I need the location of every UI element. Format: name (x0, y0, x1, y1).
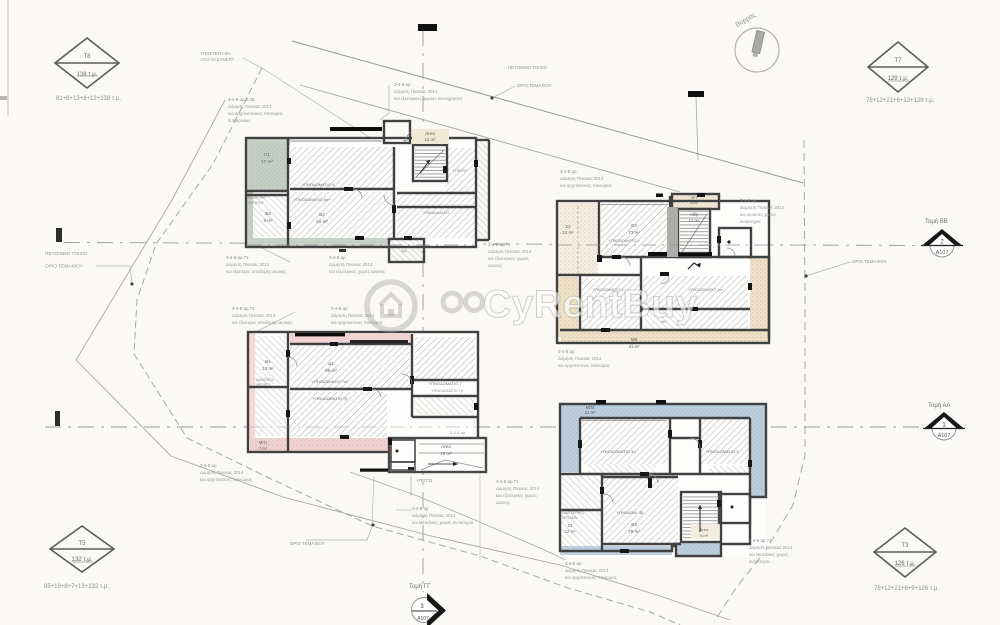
svg-text:Ζ4: Ζ4 (568, 523, 574, 528)
svg-text:ΥΠΝΟΔΩΜΑΤΙΟ 3: ΥΠΝΟΔΩΜΑΤΙΟ 3 (706, 449, 740, 454)
svg-text:15 m²: 15 m² (440, 451, 452, 456)
svg-text:ΟΡΙΟ ΤΕΜΑΧΙΟΥ: ΟΡΙΟ ΤΕΜΑΧΙΟΥ (290, 541, 325, 546)
svg-text:Δόμηση Πινακας 2014: Δόμηση Πινακας 2014 (394, 89, 438, 94)
svg-text:Τομή ΒΒ: Τομή ΒΒ (925, 218, 948, 225)
svg-text:ΥΠΝΟΔΩΜΑΤΙΟ 5α+: ΥΠΝΟΔΩΜΑΤΙΟ 5α+ (293, 197, 331, 202)
svg-text:& Μαρινικες: & Μαρινικες (228, 118, 251, 123)
svg-text:και αρχιτεκτονες Χανιώρας: και αρχιτεκτονες Χανιώρας (560, 183, 612, 188)
svg-text:ΚΑΘΙΣΤΙΚΟ: ΚΑΘΙΣΤΙΚΟ (248, 196, 266, 200)
svg-text:Β2: Β2 (319, 212, 325, 217)
svg-text:και εξωτερες υποδομης Διοικης: και εξωτερες υποδομης Διοικης (232, 320, 293, 325)
svg-text:Δ1: Δ1 (328, 361, 334, 366)
svg-text:3-4-8 αρ: 3-4-8 αρ (331, 306, 348, 311)
svg-text:Β4: Β4 (631, 522, 637, 527)
svg-text:ΥΠΟΣΤΕΓΗ ΘΑ: ΥΠΟΣΤΕΓΗ ΘΑ (200, 51, 231, 56)
svg-text:Δόμηση Πινακας 2014: Δόμηση Πινακας 2014 (329, 262, 373, 267)
svg-text:Διοικης: Διοικης (496, 500, 510, 505)
svg-text:ΥΠΝΟΔΩΜΑΤΙΟ 7α+: ΥΠΝΟΔΩΜΑΤΙΟ 7α+ (311, 379, 349, 384)
svg-text:ΑΠΟ ΤΑ ΣΥΝΕΡΑ: ΑΠΟ ΤΑ ΣΥΝΕΡΑ (200, 57, 234, 62)
svg-text:138 τ.μ.: 138 τ.μ. (77, 72, 98, 78)
svg-text:ΦΑΓΗΤΟΥ: ΦΑΓΗΤΟΥ (248, 201, 265, 205)
svg-text:ΥΠΝΟΔΩΜΑΤΙΟ 3α: ΥΠΝΟΔΩΜΑΤΙΟ 3α (600, 449, 636, 454)
svg-text:41 m²: 41 m² (629, 344, 640, 349)
svg-text:78+12+21+6+12+129 τ.μ.: 78+12+21+6+12+129 τ.μ. (866, 98, 935, 104)
svg-text:3-4-8 αρ: 3-4-8 αρ (329, 255, 346, 260)
svg-text:και αρχιτεκτονες Χανιώρας: και αρχιτεκτονες Χανιώρας (558, 363, 610, 368)
svg-text:ΜΠ: ΜΠ (691, 196, 697, 200)
svg-text:ΥΠΝΟΔΩΜΑΤΙΟ 7β: ΥΠΝΟΔΩΜΑΤΙΟ 7β (431, 389, 463, 393)
svg-text:ΦΑΓΗΤΟΥ: ΦΑΓΗΤΟΥ (256, 383, 272, 387)
svg-text:Β1: Β1 (265, 359, 271, 364)
svg-text:3-4-8 αρ: 3-4-8 αρ (565, 561, 582, 566)
svg-text:3-4-8 αρ.71: 3-4-8 αρ.71 (226, 255, 249, 260)
svg-text:ΥΠΝΟΔΩΜΑΤΙΟ 4: ΥΠΝΟΔΩΜΑΤΙΟ 4 (608, 239, 639, 243)
svg-text:Ε3: Ε3 (631, 223, 637, 228)
svg-text:3-4-8 αρ.b.48: 3-4-8 αρ.b.48 (228, 97, 255, 102)
svg-text:3-4-8 αρ: 3-4-8 αρ (450, 430, 466, 435)
svg-text:12 m²: 12 m² (689, 218, 700, 223)
svg-text:7 m²: 7 m² (259, 446, 268, 451)
svg-text:ΩΔ: ΩΔ (401, 249, 407, 253)
svg-text:Δόμηση Πινακας 2014: Δόμηση Πινακας 2014 (496, 486, 540, 491)
svg-text:ΛΑΝΤΖΙΕΡΙΚΟ/: ΛΑΝΤΖΙΕΡΙΚΟ/ (562, 511, 584, 515)
svg-text:ΟΡΙΟ ΤΕΜΑΧΙΟΥ: ΟΡΙΟ ΤΕΜΑΧΙΟΥ (852, 259, 887, 264)
svg-text:και Μεταλικες χωρες: και Μεταλικες χωρες (749, 552, 789, 557)
svg-text:79 m²: 79 m² (628, 529, 640, 534)
svg-text:ΚΑΘΙΣΤΙΚΟ/: ΚΑΘΙΣΤΙΚΟ/ (256, 378, 274, 382)
svg-text:21 m²: 21 m² (585, 410, 596, 415)
svg-text:+ΓΕΓΓΩ: +ΓΕΓΓΩ (416, 478, 433, 483)
svg-text:Δόμηση Πινακας 2014: Δόμηση Πινακας 2014 (560, 176, 604, 181)
svg-text:Δόμηση Πινακας 2014: Δόμηση Πινακας 2014 (488, 249, 532, 254)
svg-text:Τομή ΓΓ: Τομή ΓΓ (409, 583, 431, 590)
svg-text:και εξωτερικες χωρων κοινοχρησ: και εξωτερικες χωρων κοινοχρηστα (394, 96, 462, 101)
svg-text:73 m²: 73 m² (628, 230, 640, 235)
svg-text:και αρχιτεκτονες Χανιώρας: και αρχιτεκτονες Χανιώρας (200, 477, 252, 482)
svg-text:Τομή ΑΑ: Τομή ΑΑ (928, 402, 950, 409)
svg-text:12 m²: 12 m² (563, 230, 574, 235)
svg-text:και αρχιτεκτονικες Χανιώρας: και αρχιτεκτονικες Χανιώρας (228, 111, 283, 116)
svg-text:81+8+13+8+12+138 τ.μ.: 81+8+13+8+12+138 τ.μ. (56, 96, 121, 102)
svg-text:και αρχιτεκτονες Χανιώρας: και αρχιτεκτονες Χανιώρας (565, 575, 617, 580)
svg-text:και εξωτερες υποδομης Διοικης: και εξωτερες υποδομης Διοικης (226, 269, 287, 274)
svg-text:Δόμηση Πινακας 2014: Δόμηση Πινακας 2014 (232, 313, 276, 318)
svg-text:ΥΠΝΟΔΩΜ. 3β: ΥΠΝΟΔΩΜ. 3β (616, 510, 644, 515)
svg-text:85+19+8+7+13+132 τ.μ.: 85+19+8+7+13+132 τ.μ. (44, 584, 109, 590)
svg-text:Αίθρ: Αίθρ (690, 212, 699, 217)
svg-text:Δόμηση Πινακας 2014: Δόμηση Πινακας 2014 (412, 513, 456, 518)
svg-text:8 m²: 8 m² (690, 201, 698, 205)
svg-text:Area: Area (700, 527, 709, 532)
svg-text:9 m²: 9 m² (700, 533, 709, 538)
svg-text:3-4-8 αρ: 3-4-8 αρ (394, 82, 411, 87)
svg-text:Τ3: Τ3 (901, 543, 909, 549)
svg-text:CyRentBuy: CyRentBuy (483, 283, 698, 326)
svg-text:ΥΠΝΟΔΩΜΑΤΙΟ 6: ΥΠΝΟΔΩΜΑΤΙΟ 6 (302, 182, 336, 187)
svg-text:Δόμηση Πινακας 2014: Δόμηση Πινακας 2014 (226, 262, 270, 267)
svg-text:Α107: Α107 (936, 250, 949, 256)
svg-text:ΥΠΝΟΔΩΜΑΤΙΟ 7β: ΥΠΝΟΔΩΜΑΤΙΟ 7β (312, 396, 348, 401)
svg-text:81 m²: 81 m² (316, 219, 328, 224)
svg-text:Β3: Β3 (265, 211, 271, 216)
svg-text:και ανοικτες χωρες: και ανοικτες χωρες (740, 212, 776, 217)
svg-text:Μ3: Μ3 (631, 337, 637, 342)
svg-text:και εξωτερικες χωρες: και εξωτερικες χωρες (488, 256, 529, 261)
svg-text:3-4-8 αρ: 3-4-8 αρ (412, 506, 429, 511)
svg-text:Π1: Π1 (264, 152, 270, 157)
svg-text:ΟΡΙΟ ΤΕΜΑΧΙΟΥ: ΟΡΙΟ ΤΕΜΑΧΙΟΥ (45, 264, 84, 270)
svg-text:13 m²: 13 m² (262, 366, 274, 371)
svg-text:3-4-8 αρ: 3-4-8 αρ (740, 198, 757, 203)
svg-text:ανοικτηρια: ανοικτηρια (740, 219, 761, 224)
svg-text:και Μεταλικες χωρες ανοικτηρια: και Μεταλικες χωρες ανοικτηρια (412, 520, 474, 525)
svg-text:3-4-8 αρ.71: 3-4-8 αρ.71 (488, 242, 511, 247)
svg-text:ανοικτηρια: ανοικτηρια (749, 559, 770, 564)
svg-text:3-4-8 αρ: 3-4-8 αρ (560, 169, 577, 174)
svg-text:ΥΠΝ/ΤΙΟ: ΥΠΝ/ΤΙΟ (453, 169, 468, 173)
svg-text:Area: Area (425, 131, 435, 136)
svg-text:Ζώμηση Πινακας 2014: Ζώμηση Πινακας 2014 (740, 205, 785, 210)
svg-text:Τ5: Τ5 (78, 541, 86, 547)
svg-text:και εξωτερικες χωρες Διοικης: και εξωτερικες χωρες Διοικης (329, 269, 385, 274)
svg-text:ΥΠΝΟΔΩΜΑΤΙΟ: ΥΠΝΟΔΩΜΑΤΙΟ (423, 211, 450, 215)
svg-text:Α107: Α107 (938, 433, 951, 439)
svg-text:Α107: Α107 (417, 616, 429, 622)
svg-text:3-4-8 αρ.71: 3-4-8 αρ.71 (749, 538, 772, 543)
svg-text:Διοικης: Διοικης (488, 263, 502, 268)
svg-text:ΟΡΙΟ ΤΕΜΑΧΙΟΥ: ΟΡΙΟ ΤΕΜΑΧΙΟΥ (517, 83, 552, 88)
svg-text:ΜΠ1: ΜΠ1 (259, 440, 269, 445)
svg-text:Τ7: Τ7 (894, 58, 902, 64)
svg-text:και εξωτερικες χωρες: και εξωτερικες χωρες (496, 493, 537, 498)
svg-text:12 m²: 12 m² (565, 529, 576, 534)
svg-text:Δόμηση Πινακας 2014: Δόμηση Πινακας 2014 (558, 356, 602, 361)
svg-text:3-4-8 αρ.71: 3-4-8 αρ.71 (232, 306, 255, 311)
svg-text:78+12+21+6+9+126 τ.μ.: 78+12+21+6+9+126 τ.μ. (874, 586, 939, 592)
svg-text:9 m²: 9 m² (264, 218, 274, 223)
svg-text:12 m²: 12 m² (424, 137, 436, 142)
svg-text:3-4-8 αρ.71: 3-4-8 αρ.71 (496, 479, 519, 484)
svg-text:Δόμηση Πινακας 2014: Δόμηση Πινακας 2014 (200, 470, 244, 475)
svg-text:Τ8: Τ8 (83, 54, 91, 60)
svg-text:ΥΠΝΟΔΩΜΑΤΙΟ 7: ΥΠΝΟΔΩΜΑΤΙΟ 7 (429, 381, 463, 386)
svg-text:Δόμηση Πινακας 2014: Δόμηση Πινακας 2014 (749, 545, 793, 550)
svg-text:ΠΕΤΟΙΝΝΟ ΤΟΙΧΙΟ: ΠΕΤΟΙΝΝΟ ΤΟΙΧΙΟ (45, 251, 88, 257)
svg-text:17 m²: 17 m² (261, 159, 273, 164)
svg-text:Ζ3: Ζ3 (566, 224, 572, 229)
svg-text:Δόμηση Πινακας 2014: Δόμηση Πινακας 2014 (228, 104, 272, 109)
svg-text:ΠΕΤΟΙΝΝΟ ΤΟΙΧΙΟ: ΠΕΤΟΙΝΝΟ ΤΟΙΧΙΟ (508, 65, 548, 70)
svg-text:85 m²: 85 m² (325, 368, 337, 373)
svg-text:3-4-8 αρ: 3-4-8 αρ (558, 349, 575, 354)
svg-text:3-4-8 αρ: 3-4-8 αρ (200, 463, 217, 468)
svg-text:ΟΡΓΑΝΩΝ: ΟΡΓΑΝΩΝ (562, 516, 578, 520)
svg-text:Δόμηση Πινακας 2014: Δόμηση Πινακας 2014 (565, 568, 609, 573)
svg-text:Area: Area (441, 444, 451, 449)
